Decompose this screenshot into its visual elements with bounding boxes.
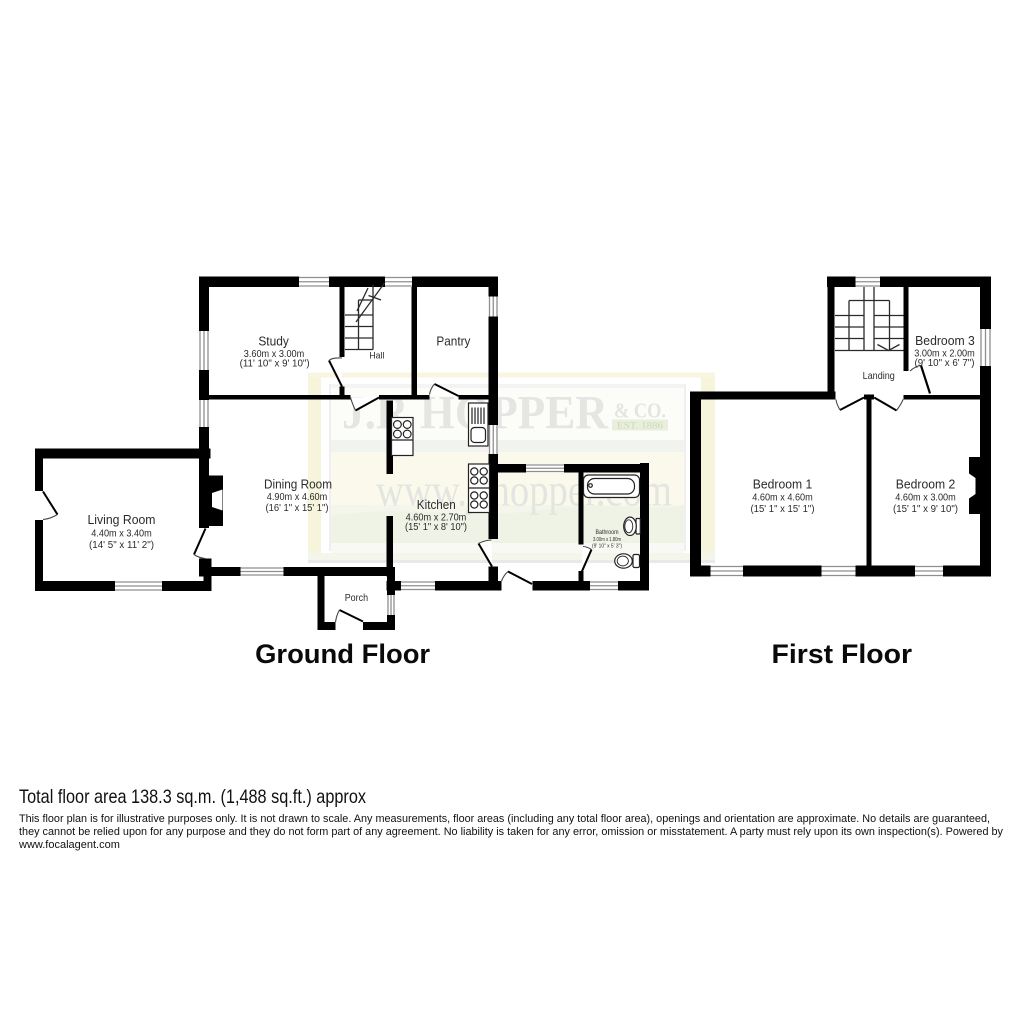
svg-text:& CO.: & CO.	[614, 399, 666, 423]
svg-text:Ground Floor: Ground Floor	[255, 639, 430, 669]
svg-text:3.00m x 1.80m: 3.00m x 1.80m	[593, 537, 621, 543]
svg-text:(16' 1" x 15' 1"): (16' 1" x 15' 1")	[266, 503, 329, 514]
svg-text:(15' 1" x 9' 10"): (15' 1" x 9' 10")	[893, 504, 958, 515]
svg-text:4.60m x 3.00m: 4.60m x 3.00m	[895, 493, 956, 504]
svg-text:(11' 10" x 9' 10"): (11' 10" x 9' 10")	[240, 359, 310, 370]
svg-text:4.60m x 4.60m: 4.60m x 4.60m	[752, 493, 813, 504]
svg-text:Study: Study	[258, 333, 289, 348]
svg-text:Pantry: Pantry	[436, 334, 470, 349]
svg-text:they cannot be relied upon for: they cannot be relied upon for any purpo…	[19, 826, 1003, 838]
svg-text:4.40m x 3.40m: 4.40m x 3.40m	[91, 529, 152, 540]
svg-text:Bedroom 3: Bedroom 3	[915, 333, 975, 348]
svg-text:Hall: Hall	[369, 351, 384, 361]
svg-text:Bathroom: Bathroom	[596, 529, 619, 536]
svg-text:Living Room: Living Room	[88, 512, 156, 527]
svg-text:(15' 1" x 15' 1"): (15' 1" x 15' 1")	[751, 504, 815, 515]
svg-text:(9' 10" x 5' 3"): (9' 10" x 5' 3")	[592, 544, 622, 550]
svg-text:Kitchen: Kitchen	[417, 497, 456, 512]
svg-text:Total floor area 138.3 sq.m. (: Total floor area 138.3 sq.m. (1,488 sq.f…	[19, 786, 366, 808]
svg-text:(9' 10" x 6' 7"): (9' 10" x 6' 7")	[915, 358, 975, 369]
svg-text:(15' 1" x 8' 10"): (15' 1" x 8' 10")	[405, 522, 467, 533]
svg-text:Bedroom 2: Bedroom 2	[896, 477, 956, 492]
svg-text:www.focalagent.com: www.focalagent.com	[18, 839, 120, 851]
svg-text:This floor plan is for illustr: This floor plan is for illustrative purp…	[19, 813, 990, 825]
svg-text:EST. 1886: EST. 1886	[617, 422, 663, 432]
svg-text:First Floor: First Floor	[772, 639, 913, 669]
svg-text:(14' 5" x 11' 2"): (14' 5" x 11' 2")	[89, 540, 154, 551]
svg-text:Porch: Porch	[345, 593, 368, 604]
svg-text:Landing: Landing	[863, 370, 895, 382]
svg-text:Dining Room: Dining Room	[264, 477, 332, 492]
svg-text:Bedroom 1: Bedroom 1	[753, 477, 813, 492]
svg-text:4.90m x 4.60m: 4.90m x 4.60m	[267, 492, 328, 503]
